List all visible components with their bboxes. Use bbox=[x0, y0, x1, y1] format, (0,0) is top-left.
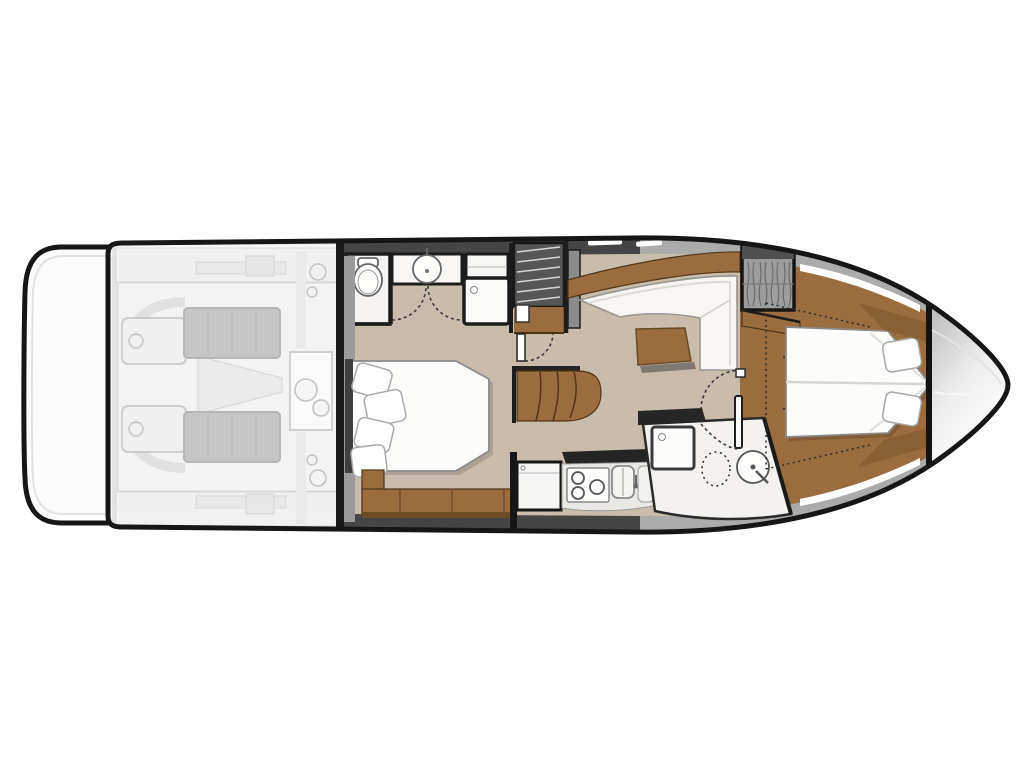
shower-cabin-midship bbox=[464, 278, 509, 324]
washbasin-drain-forward bbox=[751, 465, 756, 470]
salon-door-leaf bbox=[736, 369, 745, 377]
yacht-floorplan bbox=[0, 0, 1024, 768]
pillow-forward-2 bbox=[882, 391, 923, 427]
transom-wall bbox=[112, 245, 118, 529]
battery-box-top bbox=[246, 256, 274, 276]
bench-shadow bbox=[362, 512, 516, 518]
steering-gear-large bbox=[295, 379, 317, 401]
forward-bulkhead bbox=[926, 298, 932, 472]
engine-room-bulkhead bbox=[336, 241, 344, 531]
shower-cabin-forward bbox=[652, 427, 694, 469]
engine-room bbox=[110, 244, 340, 530]
switch-panel bbox=[516, 305, 529, 322]
swim-platform bbox=[24, 247, 110, 523]
refrigerator bbox=[517, 462, 561, 510]
engine-port-front bbox=[122, 318, 186, 364]
cabin-door-leaf bbox=[517, 334, 525, 361]
storage-cabinet bbox=[466, 254, 508, 278]
steering-gear-small bbox=[313, 400, 329, 416]
bow-deck-surface bbox=[932, 300, 1006, 470]
stern-gear-rail-top bbox=[296, 252, 306, 348]
engine-starboard-front bbox=[122, 406, 186, 452]
swim-platform-outline bbox=[24, 247, 110, 523]
bow-deck bbox=[932, 300, 1006, 470]
interior bbox=[110, 236, 1006, 534]
storage-bench bbox=[362, 489, 516, 514]
coffee-table bbox=[636, 328, 691, 365]
bathroom-door-leaf bbox=[735, 396, 742, 448]
floorplan-svg bbox=[0, 0, 1024, 768]
curved-steps bbox=[517, 371, 601, 421]
pillow-forward-1 bbox=[882, 337, 923, 373]
washbasin-drain bbox=[425, 269, 429, 273]
battery-box-bottom bbox=[246, 494, 274, 514]
stern-gear-rail-bottom bbox=[296, 432, 306, 524]
